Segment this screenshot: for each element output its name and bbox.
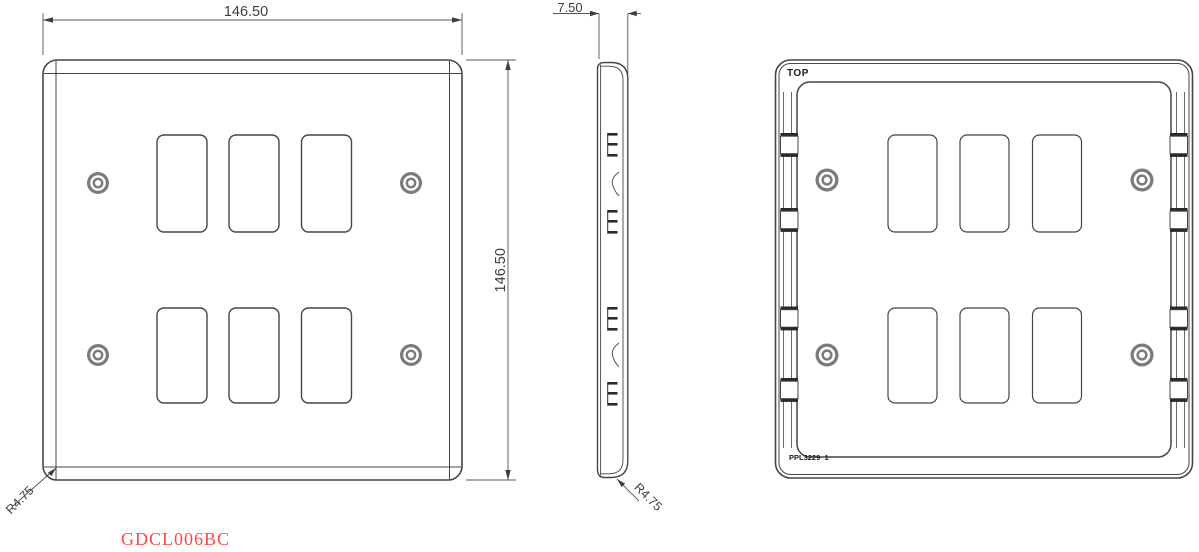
front-plate-outline [43,60,462,480]
rear-top-orientation-label: TOP [787,69,809,79]
rear-clip-rails [784,92,1185,448]
rear-screw-holes [816,169,1154,367]
side-clip-details [607,133,617,406]
part-number-label: GDCL006BC [121,530,230,548]
front-screw-holes [87,172,422,366]
front-width-dimension-label: 146.50 [216,5,276,20]
rear-mould-reference-label: PPL3229 1 [789,454,829,462]
rear-cutouts [888,135,1082,403]
dimension-side-depth [553,11,641,74]
front-view-drawing [43,60,462,480]
drawing-linework [0,0,1199,552]
side-depth-dimension-label: 7.50 [550,1,590,14]
technical-drawing-canvas: 146.50 146.50 7.50 R4.75 R4.75 TOP PPL32… [0,0,1199,552]
side-view-drawing [598,63,628,478]
front-height-dimension-label: 146.50 [494,240,509,300]
rear-plate-outline [776,60,1193,478]
rear-back-panel [797,82,1171,457]
rear-view-drawing [776,60,1193,478]
front-plate-inner-lines [44,61,461,479]
front-cutouts [157,135,352,403]
rear-plate-inner-edge [779,64,1189,475]
